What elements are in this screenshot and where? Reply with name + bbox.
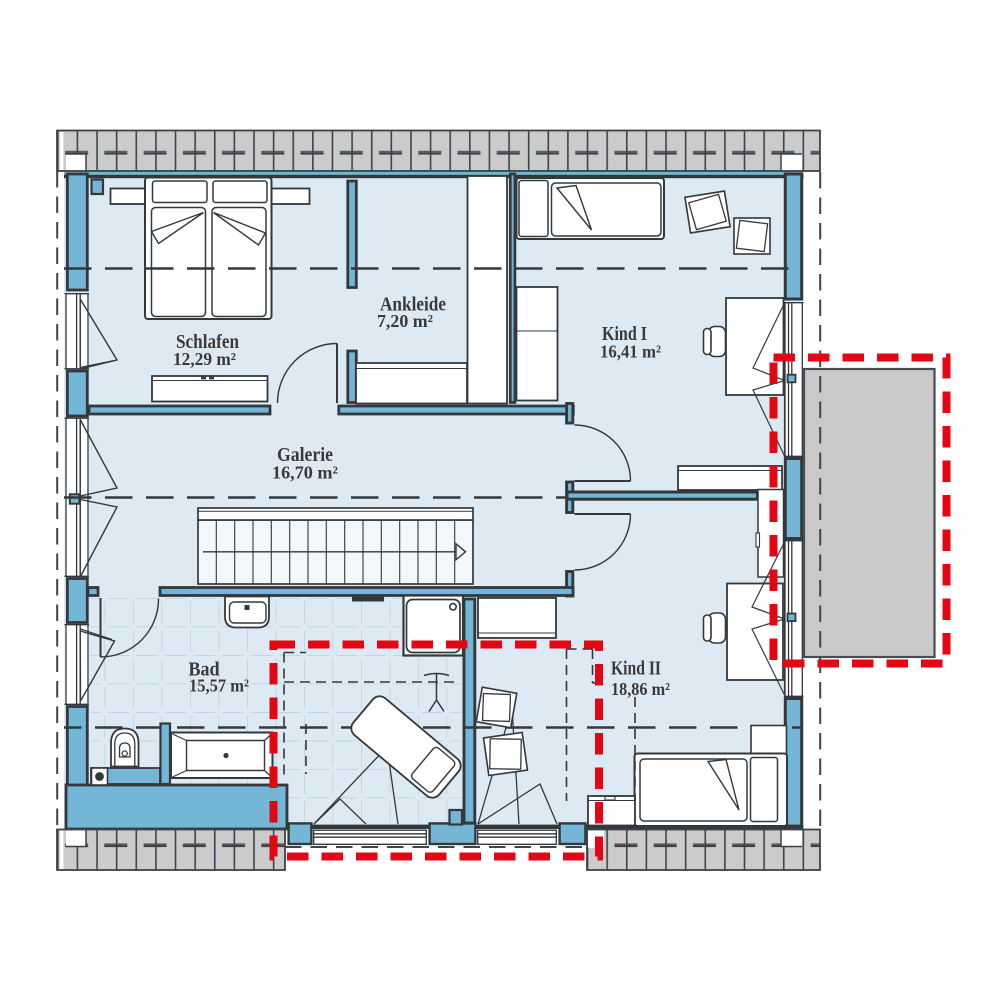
svg-text:7,20 m²: 7,20 m² bbox=[377, 311, 433, 331]
svg-text:Kind II: Kind II bbox=[611, 659, 661, 680]
svg-text:16,70 m²: 16,70 m² bbox=[272, 463, 338, 483]
svg-text:15,57 m²: 15,57 m² bbox=[189, 676, 249, 696]
svg-text:18,86 m²: 18,86 m² bbox=[611, 679, 670, 699]
svg-text:12,29 m²: 12,29 m² bbox=[173, 349, 236, 369]
svg-text:16,41 m²: 16,41 m² bbox=[600, 342, 661, 362]
